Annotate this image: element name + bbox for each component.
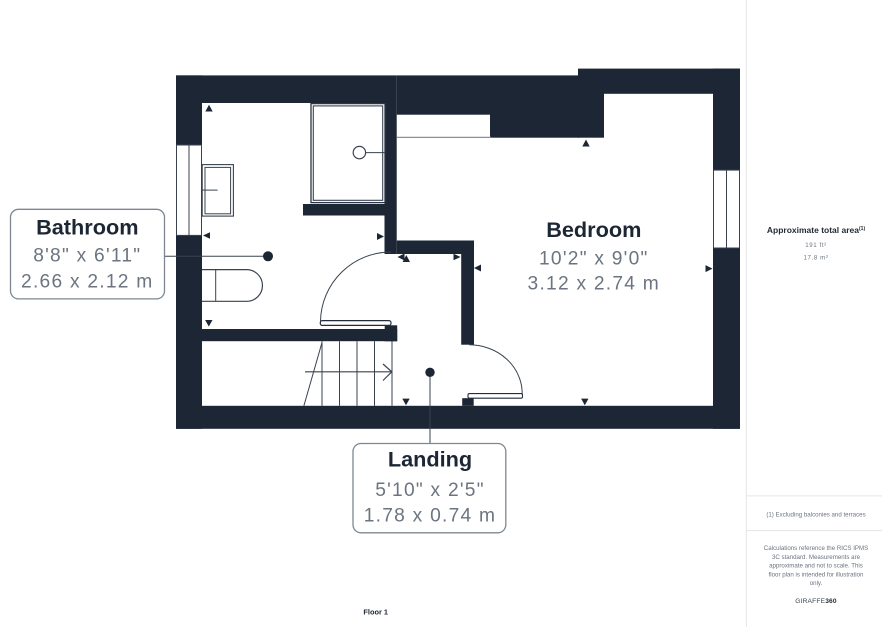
- svg-text:only.: only.: [810, 580, 823, 587]
- svg-text:3C standard. Measurements are: 3C standard. Measurements are: [772, 554, 861, 561]
- svg-text:3.12 x 2.74 m: 3.12 x 2.74 m: [528, 274, 661, 295]
- svg-text:Floor 1: Floor 1: [363, 607, 388, 616]
- svg-text:17.8 m²: 17.8 m²: [803, 255, 828, 262]
- svg-text:Approximate total area(1): Approximate total area(1): [767, 225, 866, 235]
- svg-text:Bathroom: Bathroom: [36, 215, 138, 240]
- svg-text:(1) Excluding balconies and te: (1) Excluding balconies and terraces: [766, 512, 865, 519]
- svg-text:approximate and not to scale.: approximate and not to scale. This: [769, 563, 863, 570]
- svg-text:5'10" x 2'5": 5'10" x 2'5": [375, 480, 485, 501]
- svg-text:Calculations reference the RIC: Calculations reference the RICS IPMS: [764, 545, 868, 552]
- svg-text:2.66 x 2.12 m: 2.66 x 2.12 m: [21, 271, 154, 292]
- svg-text:10'2" x 9'0": 10'2" x 9'0": [539, 248, 649, 269]
- svg-text:GIRAFFE360: GIRAFFE360: [795, 598, 837, 605]
- svg-text:floor plan is intended for ill: floor plan is intended for illustration: [769, 571, 864, 578]
- svg-text:8'8" x 6'11": 8'8" x 6'11": [33, 245, 141, 266]
- svg-text:1.78 x 0.74 m: 1.78 x 0.74 m: [364, 506, 497, 527]
- svg-text:191 ft²: 191 ft²: [805, 242, 827, 249]
- svg-text:Landing: Landing: [388, 446, 472, 471]
- svg-text:Bedroom: Bedroom: [546, 217, 641, 242]
